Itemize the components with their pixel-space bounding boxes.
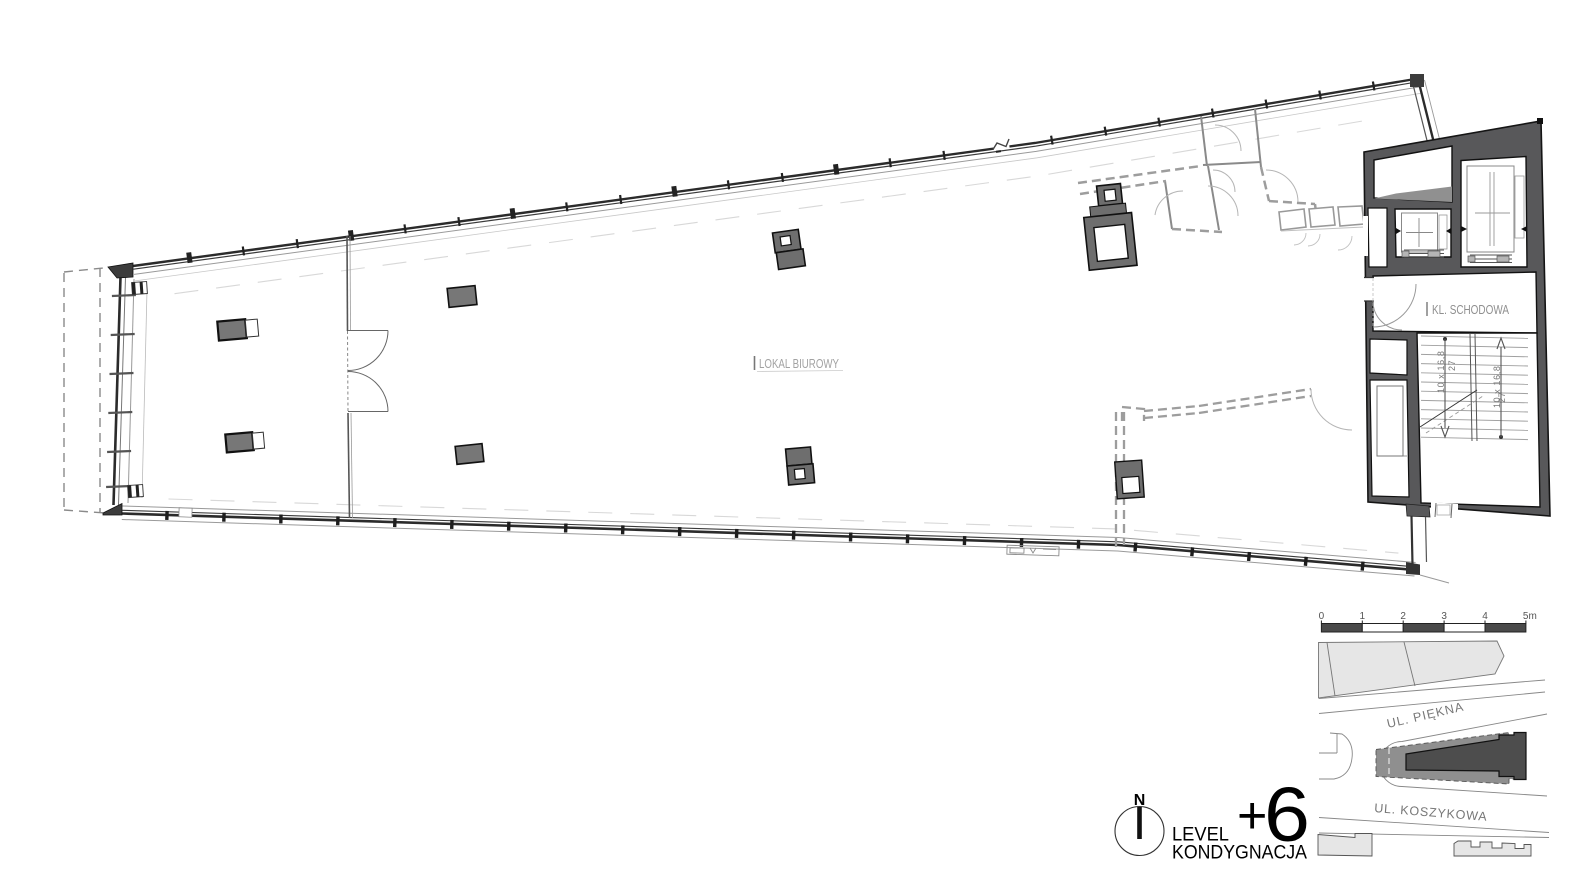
svg-text:27: 27 (1497, 392, 1507, 403)
svg-text:5m: 5m (1523, 611, 1537, 622)
svg-text:10 x 16,8: 10 x 16,8 (1436, 351, 1446, 393)
svg-text:27: 27 (1447, 360, 1457, 371)
svg-text:0: 0 (1319, 611, 1325, 622)
svg-text:1: 1 (1360, 611, 1366, 622)
svg-text:2: 2 (1400, 611, 1406, 622)
svg-text:LOKAL BIUROWY: LOKAL BIUROWY (759, 356, 839, 371)
svg-text:UL. KOSZYKOWA: UL. KOSZYKOWA (1374, 801, 1488, 824)
svg-text:KL. SCHODOWA: KL. SCHODOWA (1432, 302, 1509, 317)
svg-text:N: N (1134, 792, 1146, 809)
svg-text:UL. PIĘKNA: UL. PIĘKNA (1386, 700, 1466, 731)
svg-text:6: 6 (1264, 772, 1310, 858)
svg-text:4: 4 (1482, 611, 1488, 622)
svg-text:+: + (1237, 787, 1267, 845)
svg-text:3: 3 (1441, 611, 1447, 622)
